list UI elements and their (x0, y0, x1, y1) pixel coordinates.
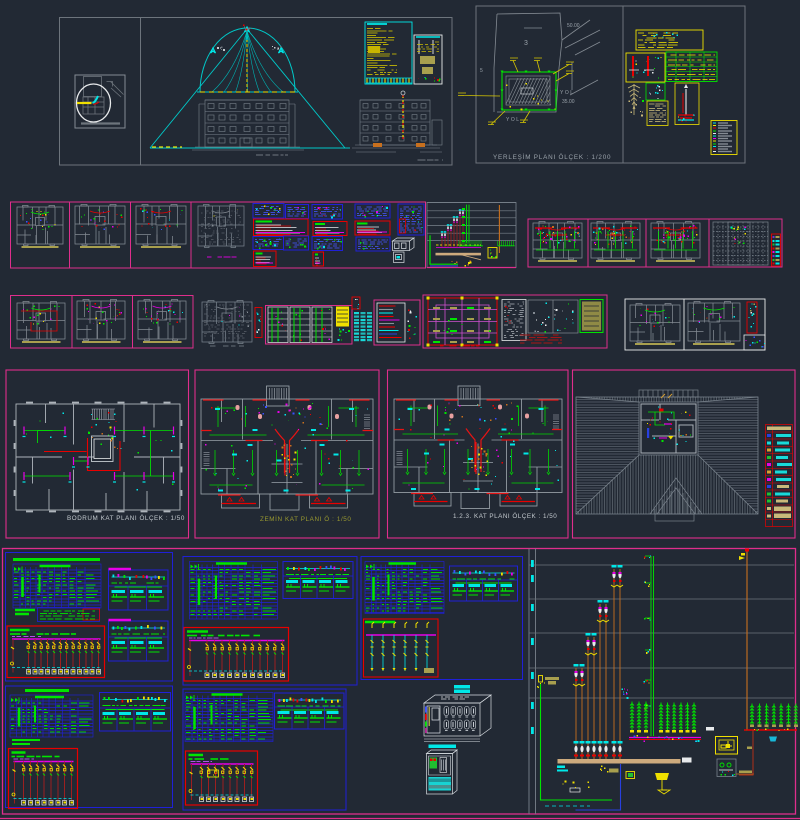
svg-text:ZEMİN KAT PLANI Ö : 1/50: ZEMİN KAT PLANI Ö : 1/50 (260, 514, 352, 523)
svg-text:3: 3 (524, 40, 528, 47)
svg-text:5: 5 (480, 68, 483, 74)
svg-text:35.00: 35.00 (562, 99, 575, 105)
svg-text:1.2.3. KAT PLANI ÖLÇEK : 1/50: 1.2.3. KAT PLANI ÖLÇEK : 1/50 (453, 512, 557, 520)
svg-text:YOL: YOL (506, 117, 521, 123)
svg-text:YERLEŞİM PLANI ÖLÇEK : 1/200: YERLEŞİM PLANI ÖLÇEK : 1/200 (493, 152, 611, 161)
svg-text:50.00: 50.00 (567, 23, 580, 29)
svg-text:BODRUM KAT PLANI ÖLÇEK : 1/50: BODRUM KAT PLANI ÖLÇEK : 1/50 (67, 514, 185, 522)
svg-text:YOL: YOL (560, 90, 575, 96)
